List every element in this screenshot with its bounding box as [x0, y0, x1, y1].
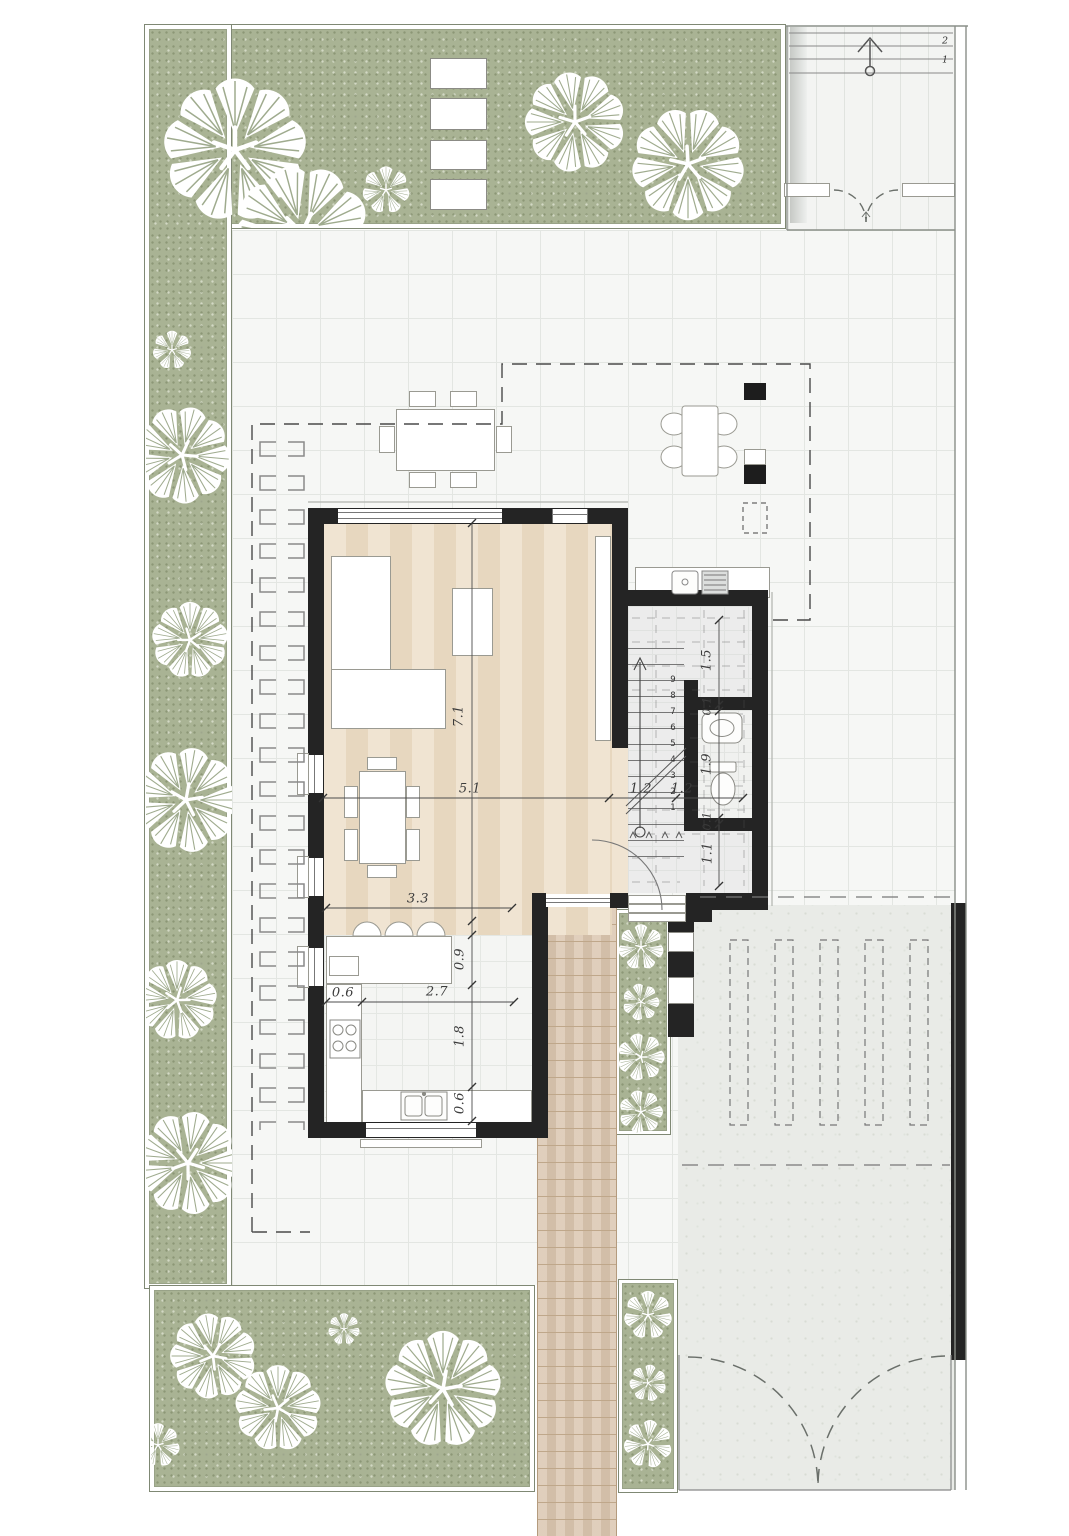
deck-walkway — [537, 908, 617, 1536]
exit-step — [628, 904, 686, 913]
garden-corner-patch — [150, 218, 226, 230]
outdoor-chair — [409, 472, 436, 488]
kitchen-counter-south — [362, 1090, 532, 1123]
coffee-table — [452, 588, 493, 656]
stair-number: 6 — [670, 723, 675, 733]
stair-number: 4 — [670, 755, 675, 765]
outdoor-chair — [409, 391, 436, 407]
dim-kitchen-counter: 0.6 — [332, 986, 354, 1001]
garden-bottom-left — [150, 1286, 534, 1491]
dining-chair — [406, 786, 420, 818]
dining-chair — [367, 865, 397, 878]
dim-kitchen-d2: 1.8 — [453, 1025, 468, 1047]
dim-wc-length: 1.9 — [700, 753, 715, 775]
outdoor-cabinet — [744, 449, 766, 465]
wall-hall-south-a — [532, 893, 546, 908]
kitchen-counter-left — [326, 984, 362, 1123]
corridor-floor — [612, 748, 628, 831]
outdoor-chair — [450, 391, 477, 407]
wall-west — [308, 508, 324, 1138]
driveway — [678, 905, 955, 1490]
dining-chair — [344, 829, 358, 861]
dim-stair-width: 1.5 — [700, 649, 715, 671]
stair-number: 7 — [670, 707, 675, 717]
dim-wc-wall-bottom: 0.1 — [701, 812, 714, 831]
wall-step-block — [686, 893, 712, 922]
dim-living-width: 5.1 — [459, 782, 481, 797]
window-south — [366, 1123, 476, 1137]
floor-plan-canvas: 7.1 5.1 3.3 0.6 2.7 0.9 1.8 0.6 1.2 1.2 … — [0, 0, 1069, 1536]
entry-court-paving — [788, 27, 955, 230]
dining-chair — [406, 829, 420, 861]
deck-door-glass — [546, 894, 610, 907]
entry-step-label: 2 — [942, 36, 948, 47]
garden-planter — [430, 58, 487, 89]
window-sill — [360, 1139, 482, 1148]
wall-stair-east — [752, 590, 768, 910]
garden-planter — [430, 98, 487, 130]
boundary-wall-right — [951, 903, 966, 1360]
garden-planter — [430, 179, 487, 210]
window-sill — [297, 946, 309, 988]
garden-left — [145, 25, 231, 1288]
entry-step-label: 1 — [942, 55, 948, 66]
planter-walkway — [619, 1280, 677, 1492]
window-west — [309, 755, 323, 793]
outdoor-chair — [450, 472, 477, 488]
dim-kitchen-d1: 0.9 — [453, 948, 468, 970]
sliding-door-north — [338, 509, 502, 523]
stair-number: 8 — [670, 691, 675, 701]
dim-hall-depth: 1.1 — [701, 842, 716, 864]
sofa-chaise — [331, 669, 446, 729]
outdoor-chair — [496, 426, 512, 453]
stair-number: 1 — [670, 803, 675, 813]
wall-kitchen-east — [532, 905, 548, 1138]
fence-gap — [668, 932, 694, 952]
dining-chair — [344, 786, 358, 818]
dim-wc-wall-top: 0.1 — [701, 697, 714, 716]
wall-wc-north — [684, 697, 766, 710]
dining-table — [359, 771, 406, 864]
outdoor-dining-table — [396, 409, 495, 471]
window-sill — [297, 753, 309, 795]
window-north — [552, 509, 588, 523]
gate-wall-stub — [902, 183, 955, 197]
garden-planter — [430, 140, 487, 170]
wall-stair-west — [612, 608, 628, 748]
wall-wc-south — [684, 818, 766, 831]
stair-number: 2 — [670, 787, 675, 797]
bbq-unit — [744, 383, 766, 400]
fence-gap — [668, 977, 694, 1004]
dining-chair — [367, 757, 397, 770]
planter-middle — [616, 910, 670, 1134]
outdoor-chair — [379, 426, 395, 453]
stair-number: 5 — [670, 739, 675, 749]
dim-hall-seg1: 1.2 — [630, 782, 652, 797]
stair-number: 9 — [670, 675, 675, 685]
sideboard — [595, 536, 611, 741]
stair-number: 3 — [670, 771, 675, 781]
window-west — [309, 858, 323, 896]
exit-step — [628, 895, 686, 904]
window-sill — [297, 856, 309, 898]
wall-hall-south-b — [610, 893, 628, 908]
dim-living-depth: 7.1 — [452, 705, 467, 727]
dim-kitchen-inner: 2.7 — [426, 985, 448, 1000]
dim-kitchen-width: 3.3 — [407, 892, 429, 907]
exit-step — [628, 913, 686, 922]
gate-wall-stub — [784, 183, 830, 197]
kitchen-appliance — [329, 956, 359, 976]
wall-stair-north — [612, 590, 768, 606]
dim-kitchen-d3: 0.6 — [453, 1092, 468, 1114]
window-west — [309, 948, 323, 986]
outdoor-cabinet-dark — [744, 465, 766, 484]
